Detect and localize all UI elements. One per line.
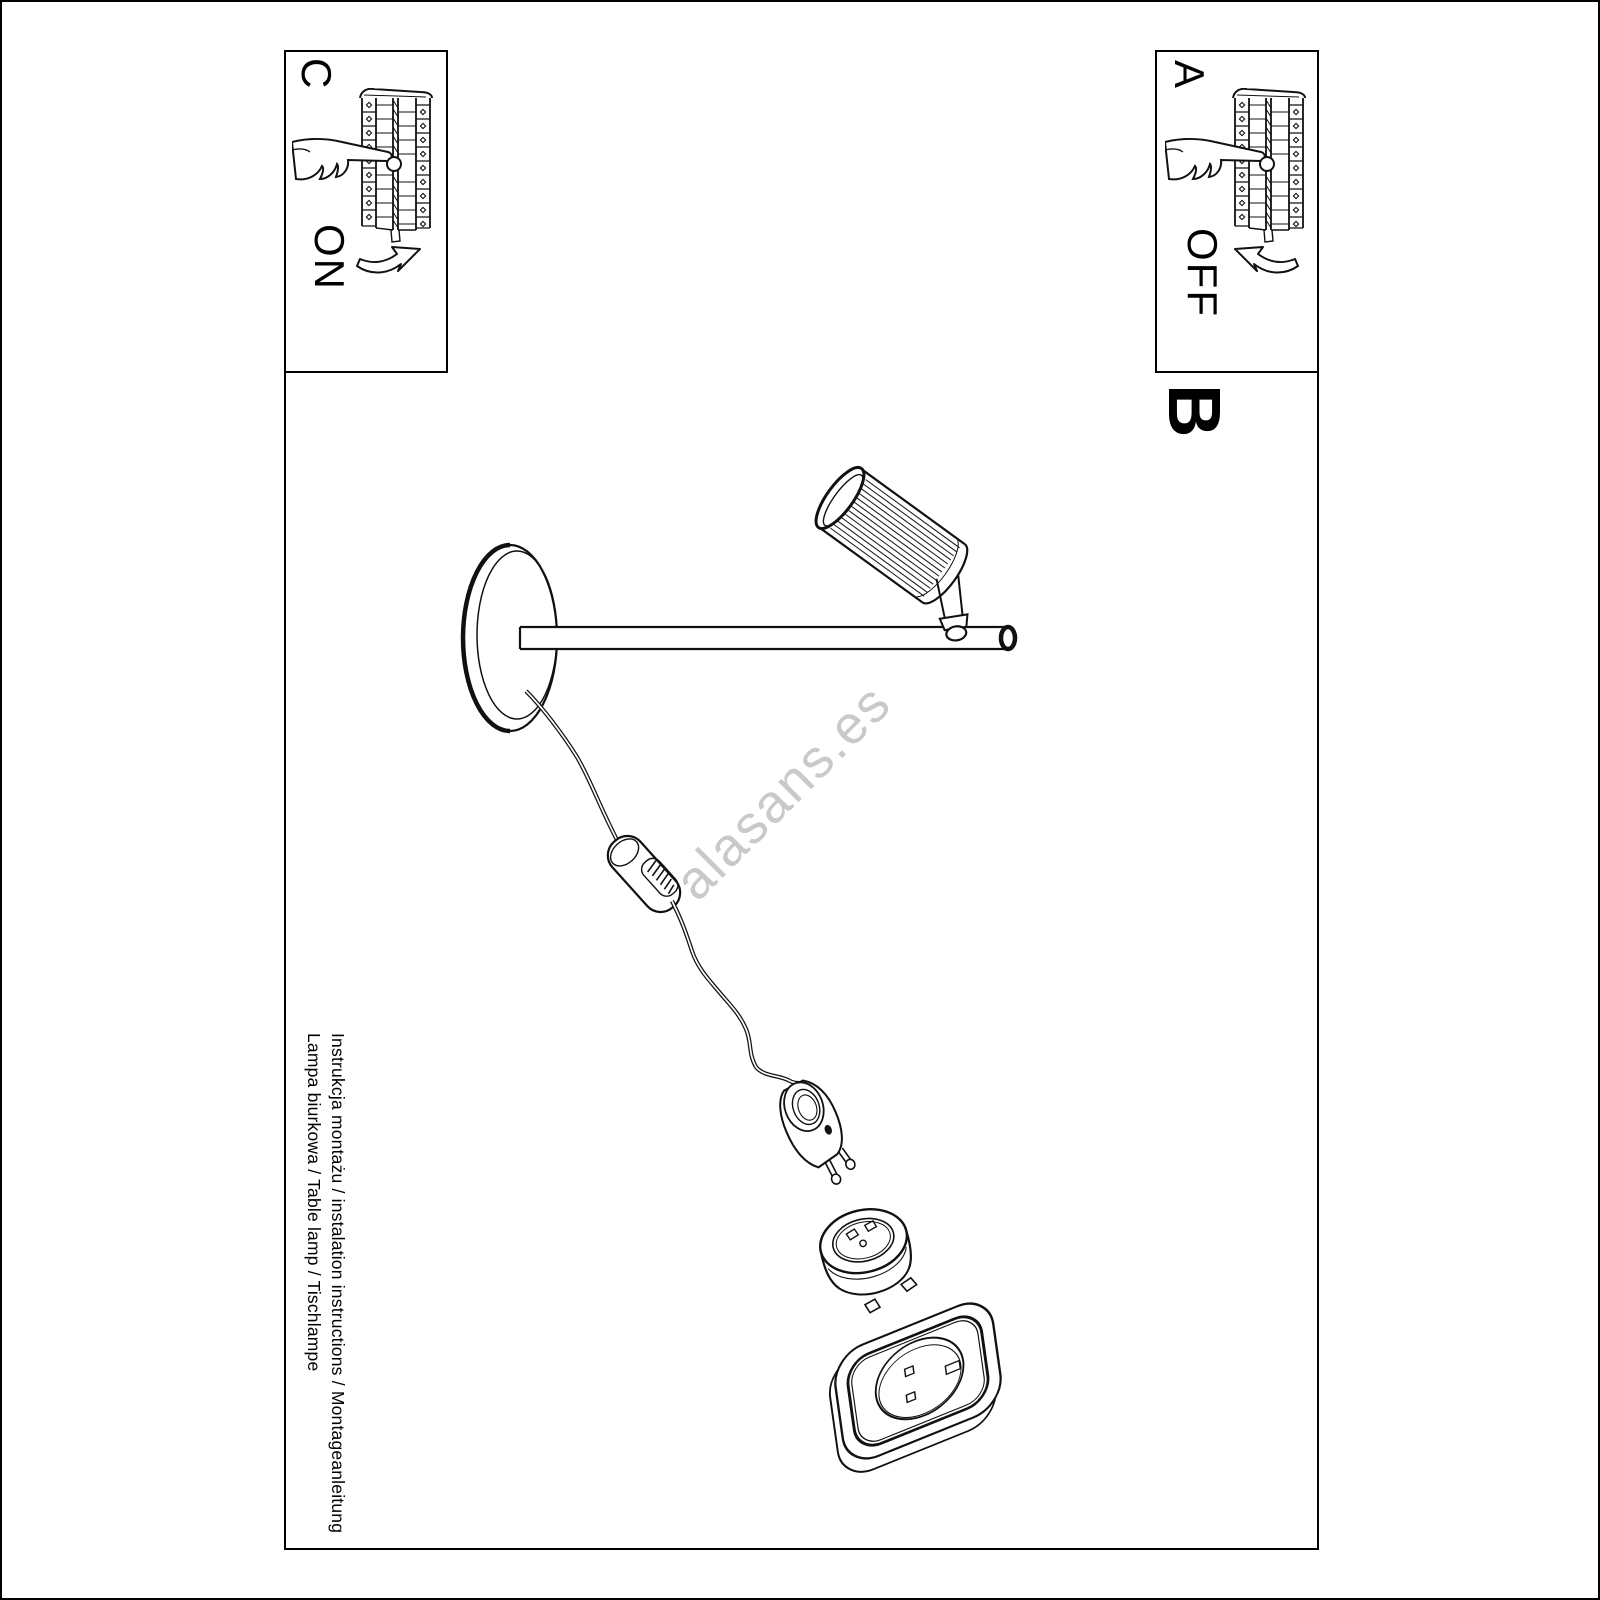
on-label: ON xyxy=(308,224,350,291)
off-label: OFF xyxy=(1181,228,1223,318)
step-c-box: C ON xyxy=(284,50,448,373)
socket-adapter xyxy=(813,1200,923,1320)
step-a-label: A xyxy=(1167,60,1211,88)
table-lamp-assembly-diagram xyxy=(286,373,1316,1548)
wall-socket xyxy=(825,1293,1006,1481)
lamp-rod xyxy=(520,627,1015,649)
lamp-shade xyxy=(808,461,975,611)
step-c-label: C xyxy=(294,58,338,88)
rotate-arrow-icon xyxy=(354,236,436,280)
caption-title: Instrukcja montażu / instalation instruc… xyxy=(326,1033,350,1533)
power-cable-lower xyxy=(672,901,803,1085)
caption-subtitle: Lampa biurkowa / Table lamp / Tischlampe xyxy=(302,1033,326,1533)
power-cable-upper xyxy=(526,691,617,840)
rotate-arrow-icon xyxy=(1219,236,1301,280)
caption-block: Instrukcja montażu / instalation instruc… xyxy=(302,1033,350,1533)
step-a-box: A OFF xyxy=(1155,50,1319,373)
power-plug xyxy=(772,1073,860,1194)
hand-pressing-switch-off-illustration xyxy=(1165,88,1315,250)
